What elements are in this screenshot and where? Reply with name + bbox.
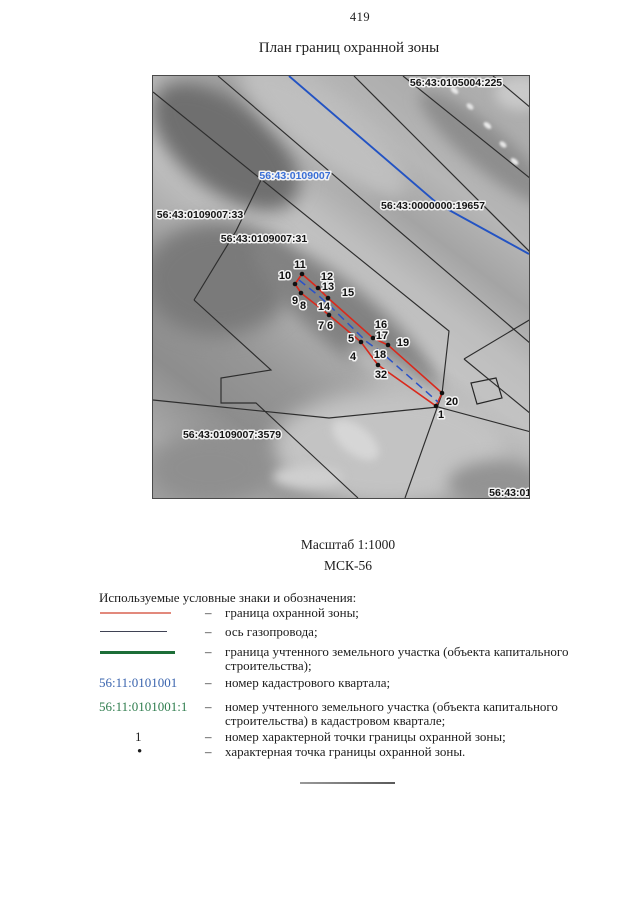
point-number: 5 [348,333,354,345]
boundary-point-dot [359,340,364,345]
legend-dash: – [205,700,225,714]
cadastral-map: 111012131598147616175194183220156:43:010… [152,75,530,499]
footer-divider [300,782,395,784]
point-number: 14 [318,301,331,313]
point-number: 10 [279,270,291,282]
legend-dash: – [205,745,225,759]
utility-line [289,76,529,254]
document-page: 419 План границ охранной зоны 1110121315… [0,0,640,905]
legend-description: номер учтенного земельного участка (объе… [225,700,577,728]
building-outline [471,378,502,404]
boundary-point-dot [376,363,381,368]
point-number: 6 [327,320,333,332]
point-number: 20 [446,396,458,408]
cadastral-number-label: 56:43:0109007 [259,170,330,182]
pipeline-axis [299,280,438,402]
legend-dash: – [205,676,225,690]
legend-description: номер кадастрового квартала; [225,676,577,690]
parcel-boundary-line [354,76,529,253]
legend-header: Используемые условные знаки и обозначени… [99,591,577,605]
legend-swatch-line-green [100,651,175,654]
legend-dash: – [205,606,225,620]
cadastral-number-label: 56:43:0000000:19657 [381,200,485,212]
legend-rows: –граница охранной зоны;–ось газопровода;… [99,606,577,759]
point-number: 8 [300,300,306,312]
legend-description: граница охранной зоны; [225,606,577,620]
page-title: План границ охранной зоны [159,40,539,57]
legend-symbol-text: • [99,746,142,758]
legend: Используемые условные знаки и обозначени… [99,591,577,759]
legend-row: 1–номер характерной точки границы охранн… [99,730,577,744]
page-number: 419 [170,10,550,25]
point-number: 18 [374,349,386,361]
legend-symbol: • [99,745,205,759]
cadastral-number-label: 56:43:0105004:225 [410,77,502,89]
boundary-point-dot [371,336,376,341]
legend-row: •–характерная точка границы охранной зон… [99,745,577,759]
legend-symbol: 1 [99,730,205,744]
legend-symbol [99,645,205,659]
parcel-boundary-line [194,300,358,498]
point-number: 32 [375,369,387,381]
legend-symbol: 56:11:0101001 [99,676,205,690]
legend-description: граница учтенного земельного участка (об… [225,645,577,673]
legend-description: ось газопровода; [225,625,577,639]
map-overlay: 111012131598147616175194183220156:43:010… [153,76,529,498]
parcel-boundary-line [153,400,529,432]
coordinate-system: МСК-56 [158,558,538,574]
boundary-point-dot [434,404,439,409]
legend-swatch-line-red [100,612,171,614]
point-number: 7 [318,320,324,332]
legend-dash: – [205,625,225,639]
legend-dash: – [205,730,225,744]
legend-row: –граница охранной зоны; [99,606,577,620]
map-scale: Масштаб 1:1000 [158,537,538,553]
legend-symbol-text: 56:11:0101001:1 [99,699,187,714]
legend-row: –ось газопровода; [99,625,577,639]
point-number: 17 [376,330,388,342]
legend-dash: – [205,645,225,659]
legend-symbol-text: 1 [99,730,142,744]
point-number: 1 [438,409,444,421]
cadastral-number-label: 56:43:0109007:3579 [183,429,281,441]
parcel-boundary-line [464,319,529,359]
boundary-point-dot [316,286,321,291]
point-number: 13 [322,281,334,293]
boundary-point-dot [327,313,332,318]
point-number: 4 [350,351,357,363]
boundary-point-dot [386,343,391,348]
boundary-point-dot [326,296,331,301]
legend-symbol-text: 56:11:0101001 [99,675,177,690]
boundary-point-dot [440,391,445,396]
point-number: 15 [342,287,354,299]
point-number: 9 [292,295,298,307]
point-number: 19 [397,337,409,349]
legend-description: характерная точка границы охранной зоны. [225,745,577,759]
parcel-boundary-line [464,359,529,414]
parcel-boundary-line [403,76,529,179]
legend-swatch-line-dark [100,631,167,632]
cadastral-number-label: 56:43:0109007:31 [221,233,308,245]
cadastral-number-label: 56:43:0109007:33 [157,209,244,221]
point-number: 11 [294,259,306,271]
cadastral-number-label: 56:43:0106 [489,487,529,498]
legend-description: номер характерной точки границы охранной… [225,730,577,744]
boundary-point-dot [293,282,298,287]
legend-symbol: 56:11:0101001:1 [99,700,205,714]
legend-symbol [99,606,205,620]
legend-row: 56:11:0101001–номер кадастрового квартал… [99,676,577,690]
legend-symbol [99,625,205,639]
legend-row: 56:11:0101001:1–номер учтенного земельно… [99,700,577,728]
boundary-point-dot [299,291,304,296]
legend-row: –граница учтенного земельного участка (о… [99,645,577,673]
boundary-point-dot [300,272,305,277]
